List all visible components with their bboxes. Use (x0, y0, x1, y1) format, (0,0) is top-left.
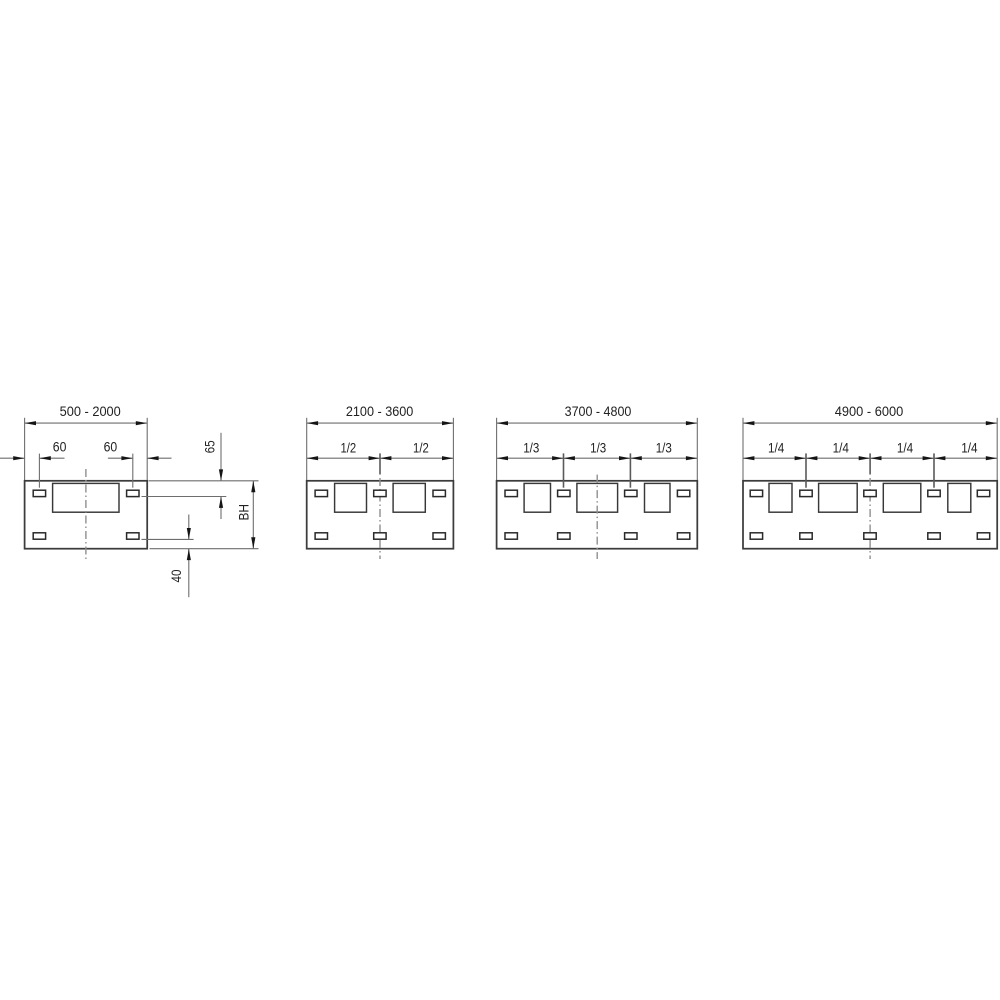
svg-text:1/4: 1/4 (768, 441, 784, 457)
svg-text:60: 60 (104, 439, 118, 455)
svg-text:60: 60 (53, 439, 67, 455)
svg-text:1/2: 1/2 (340, 441, 356, 457)
svg-text:1/2: 1/2 (413, 441, 429, 457)
svg-text:4900 - 6000: 4900 - 6000 (835, 404, 904, 420)
svg-text:1/4: 1/4 (961, 441, 977, 457)
svg-text:40: 40 (169, 569, 185, 582)
svg-text:65: 65 (203, 440, 219, 453)
svg-text:500 - 2000: 500 - 2000 (60, 404, 121, 420)
svg-text:1/4: 1/4 (833, 441, 849, 457)
svg-text:1/3: 1/3 (656, 441, 672, 457)
svg-text:2100 - 3600: 2100 - 3600 (346, 404, 414, 420)
svg-text:3700 - 4800: 3700 - 4800 (565, 404, 632, 420)
svg-text:1/3: 1/3 (523, 441, 539, 457)
svg-text:1/3: 1/3 (590, 441, 606, 457)
svg-text:1/4: 1/4 (897, 441, 913, 457)
svg-text:BH: BH (237, 504, 253, 521)
